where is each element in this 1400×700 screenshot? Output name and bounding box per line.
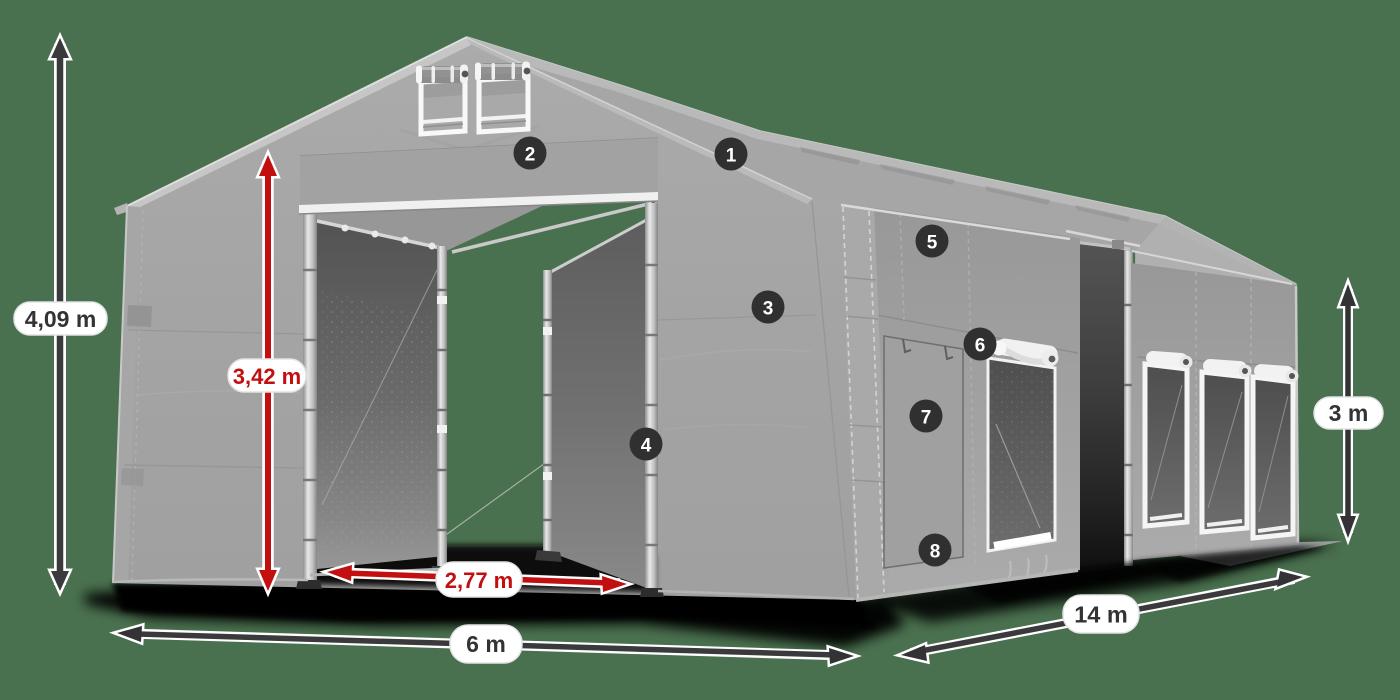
svg-text:6 m: 6 m	[466, 631, 506, 657]
svg-text:7: 7	[921, 408, 932, 429]
svg-text:3: 3	[763, 299, 774, 320]
svg-text:4: 4	[641, 436, 652, 457]
svg-text:4,09 m: 4,09 m	[25, 306, 97, 332]
svg-text:3 m: 3 m	[1329, 400, 1369, 426]
svg-text:3,42 m: 3,42 m	[233, 364, 302, 389]
svg-text:1: 1	[726, 146, 737, 167]
svg-text:2: 2	[525, 145, 536, 166]
svg-text:2,77 m: 2,77 m	[445, 568, 514, 593]
svg-text:8: 8	[930, 542, 941, 563]
svg-text:5: 5	[927, 233, 938, 254]
svg-text:6: 6	[975, 336, 986, 357]
svg-text:14 m: 14 m	[1074, 602, 1128, 628]
